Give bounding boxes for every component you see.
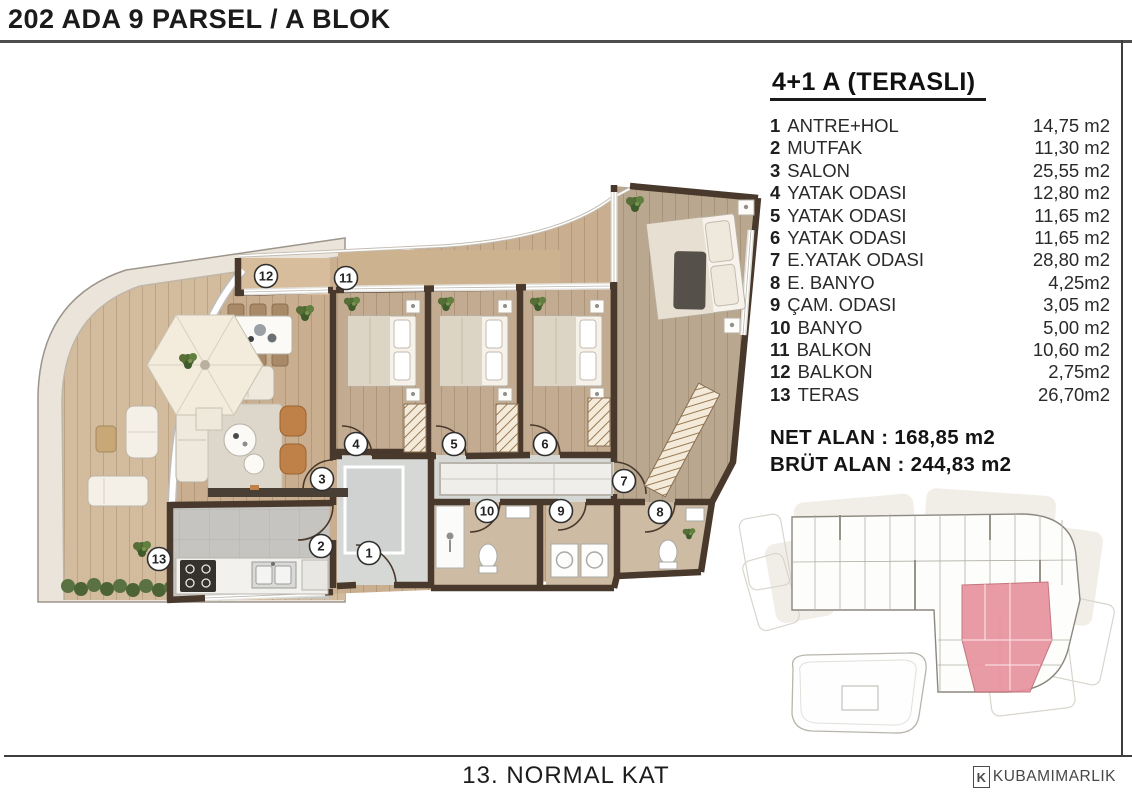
svg-text:13: 13	[152, 552, 166, 567]
room-name: YATAK ODASI	[787, 205, 906, 226]
svg-text:10: 10	[480, 504, 494, 519]
svg-text:7: 7	[620, 474, 627, 489]
room-row: 2MUTFAK11,30 m2	[770, 137, 1110, 159]
kitchen-furniture	[176, 558, 328, 594]
room-number: 10	[770, 317, 791, 338]
room-number: 4	[770, 182, 780, 203]
room-number: 3	[770, 160, 780, 181]
room-marker-2: 2	[310, 535, 333, 558]
room-name: E.YATAK ODASI	[787, 249, 924, 270]
logo-k-icon: K	[973, 766, 990, 788]
washbasin	[686, 508, 704, 521]
wardrobe	[588, 398, 610, 446]
balcony-11-floor	[338, 250, 560, 288]
room-row: 6YATAK ODASI11,65 m2	[770, 227, 1110, 249]
unit-type-title: 4+1 A (TERASLI)	[770, 68, 986, 101]
armchair	[280, 406, 306, 436]
room-list: 1ANTRE+HOL14,75 m2 2MUTFAK11,30 m2 3SALO…	[770, 115, 1110, 406]
room-area: 5,00 m2	[1043, 317, 1110, 339]
room-marker-4: 4	[345, 433, 368, 456]
room-area: 14,75 m2	[1033, 115, 1110, 137]
corridor-wardrobe	[440, 463, 612, 495]
room-row: 3SALON25,55 m2	[770, 160, 1110, 182]
room-marker-8: 8	[649, 501, 672, 524]
logo-text: KUBAMIMARLIK	[993, 768, 1116, 786]
floor-plan-sheet: 202 ADA 9 PARSEL / A BLOK	[0, 0, 1132, 800]
room-row: 4YATAK ODASI12,80 m2	[770, 182, 1110, 204]
side-table	[96, 426, 116, 452]
company-logo: K KUBAMIMARLIK	[973, 766, 1116, 788]
svg-text:12: 12	[259, 269, 273, 284]
svg-text:1: 1	[365, 546, 372, 561]
svg-text:9: 9	[557, 504, 564, 519]
room-marker-13: 13	[148, 548, 171, 571]
room-number: 11	[770, 339, 790, 360]
room-marker-6: 6	[534, 433, 557, 456]
room-row: 10BANYO5,00 m2	[770, 317, 1110, 339]
coffee-table	[224, 424, 256, 456]
entry-marble-inlay	[345, 467, 403, 553]
room-number: 2	[770, 137, 780, 158]
room-name: SALON	[787, 160, 850, 181]
sun-lounger	[88, 476, 148, 506]
room-number: 8	[770, 272, 780, 293]
room-marker-3: 3	[311, 468, 334, 491]
room-row: 8E. BANYO4,25m2	[770, 272, 1110, 294]
room-name: YATAK ODASI	[787, 182, 906, 203]
room-row: 12BALKON2,75m2	[770, 361, 1110, 383]
room-marker-9: 9	[550, 500, 573, 523]
wardrobe	[404, 404, 426, 452]
room-area: 11,30 m2	[1034, 137, 1110, 159]
room-area: 3,05 m2	[1043, 294, 1110, 316]
room-name: BALKON	[798, 361, 873, 382]
room-marker-7: 7	[613, 470, 636, 493]
room-name: ÇAM. ODASI	[787, 294, 896, 315]
master-bed	[647, 213, 746, 319]
key-plan-lower-block	[792, 653, 926, 733]
room-name: ANTRE+HOL	[787, 115, 899, 136]
room-number: 1	[770, 115, 780, 136]
room-row: 9ÇAM. ODASI3,05 m2	[770, 294, 1110, 316]
key-plan	[738, 488, 1116, 734]
room-row: 13TERAS26,70m2	[770, 384, 1110, 406]
unit-info-panel: 4+1 A (TERASLI) 1ANTRE+HOL14,75 m2 2MUTF…	[770, 68, 1110, 478]
room-area: 2,75m2	[1048, 361, 1110, 383]
washbasin	[506, 506, 530, 518]
svg-text:5: 5	[450, 437, 457, 452]
armchair	[280, 444, 306, 474]
svg-text:3: 3	[318, 472, 325, 487]
room-name: TERAS	[798, 384, 860, 405]
room-area: 10,60 m2	[1033, 339, 1110, 361]
room-marker-10: 10	[476, 500, 499, 523]
room-area: 28,80 m2	[1033, 249, 1110, 271]
room-row: 7E.YATAK ODASI28,80 m2	[770, 249, 1110, 271]
room-number: 12	[770, 361, 791, 382]
dryer	[581, 544, 608, 577]
svg-text:6: 6	[541, 437, 548, 452]
room-row: 1ANTRE+HOL14,75 m2	[770, 115, 1110, 137]
svg-text:8: 8	[656, 505, 663, 520]
room-area: 11,65 m2	[1034, 227, 1110, 249]
room-marker-12: 12	[255, 265, 278, 288]
stove	[180, 560, 216, 592]
room-area: 4,25m2	[1048, 272, 1110, 294]
toilet	[659, 540, 677, 564]
room-name: MUTFAK	[787, 137, 862, 158]
gross-area: BRÜT ALAN : 244,83 m2	[770, 451, 1110, 478]
room-name: BANYO	[798, 317, 863, 338]
room-number: 7	[770, 249, 780, 270]
room-row: 11BALKON10,60 m2	[770, 339, 1110, 361]
room-number: 13	[770, 384, 791, 405]
room-number: 9	[770, 294, 780, 315]
net-area: NET ALAN : 168,85 m2	[770, 424, 1110, 451]
washer	[551, 544, 578, 577]
room-row: 5YATAK ODASI11,65 m2	[770, 205, 1110, 227]
svg-text:11: 11	[339, 271, 353, 286]
room-marker-1: 1	[358, 542, 381, 565]
svg-text:2: 2	[317, 539, 324, 554]
room-name: YATAK ODASI	[787, 227, 906, 248]
room-number: 6	[770, 227, 780, 248]
area-totals: NET ALAN : 168,85 m2 BRÜT ALAN : 244,83 …	[770, 424, 1110, 478]
room-area: 26,70m2	[1038, 384, 1110, 406]
room-name: BALKON	[797, 339, 872, 360]
room-name: E. BANYO	[787, 272, 874, 293]
room-area: 11,65 m2	[1034, 205, 1110, 227]
room-marker-11: 11	[335, 267, 358, 290]
room-number: 5	[770, 205, 780, 226]
room-marker-5: 5	[443, 433, 466, 456]
wardrobe	[496, 404, 518, 452]
floor-label: 13. NORMAL KAT	[0, 762, 1132, 790]
room-area: 12,80 m2	[1033, 182, 1110, 204]
room-area: 25,55 m2	[1033, 160, 1110, 182]
svg-text:4: 4	[352, 437, 360, 452]
toilet	[479, 544, 497, 568]
